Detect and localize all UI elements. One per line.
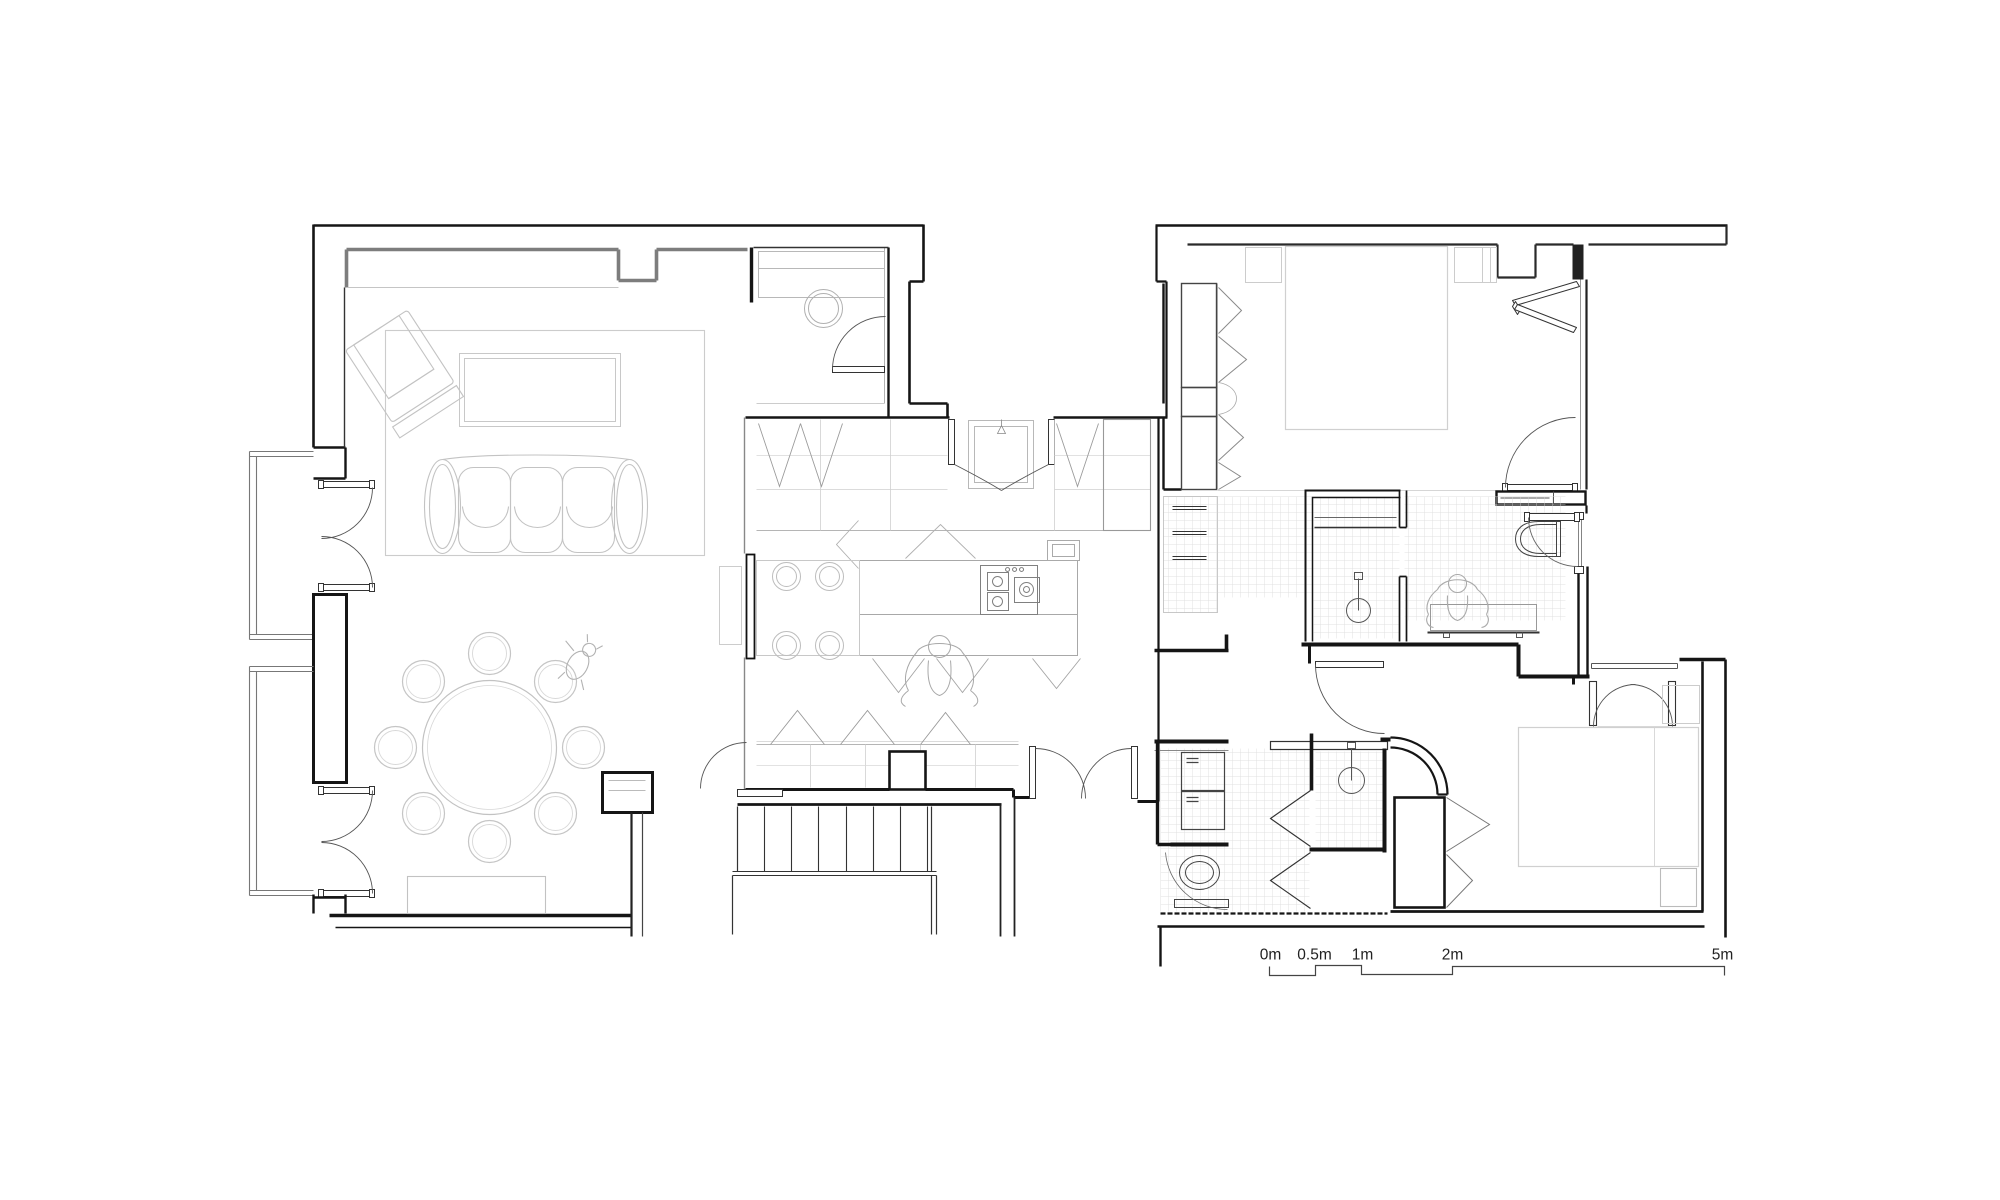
svg-text:0m: 0m (1260, 947, 1282, 964)
svg-text:2m: 2m (1442, 947, 1464, 964)
svg-text:5m: 5m (1712, 947, 1734, 964)
svg-text:1m: 1m (1352, 947, 1374, 964)
svg-text:0.5m: 0.5m (1297, 947, 1331, 964)
